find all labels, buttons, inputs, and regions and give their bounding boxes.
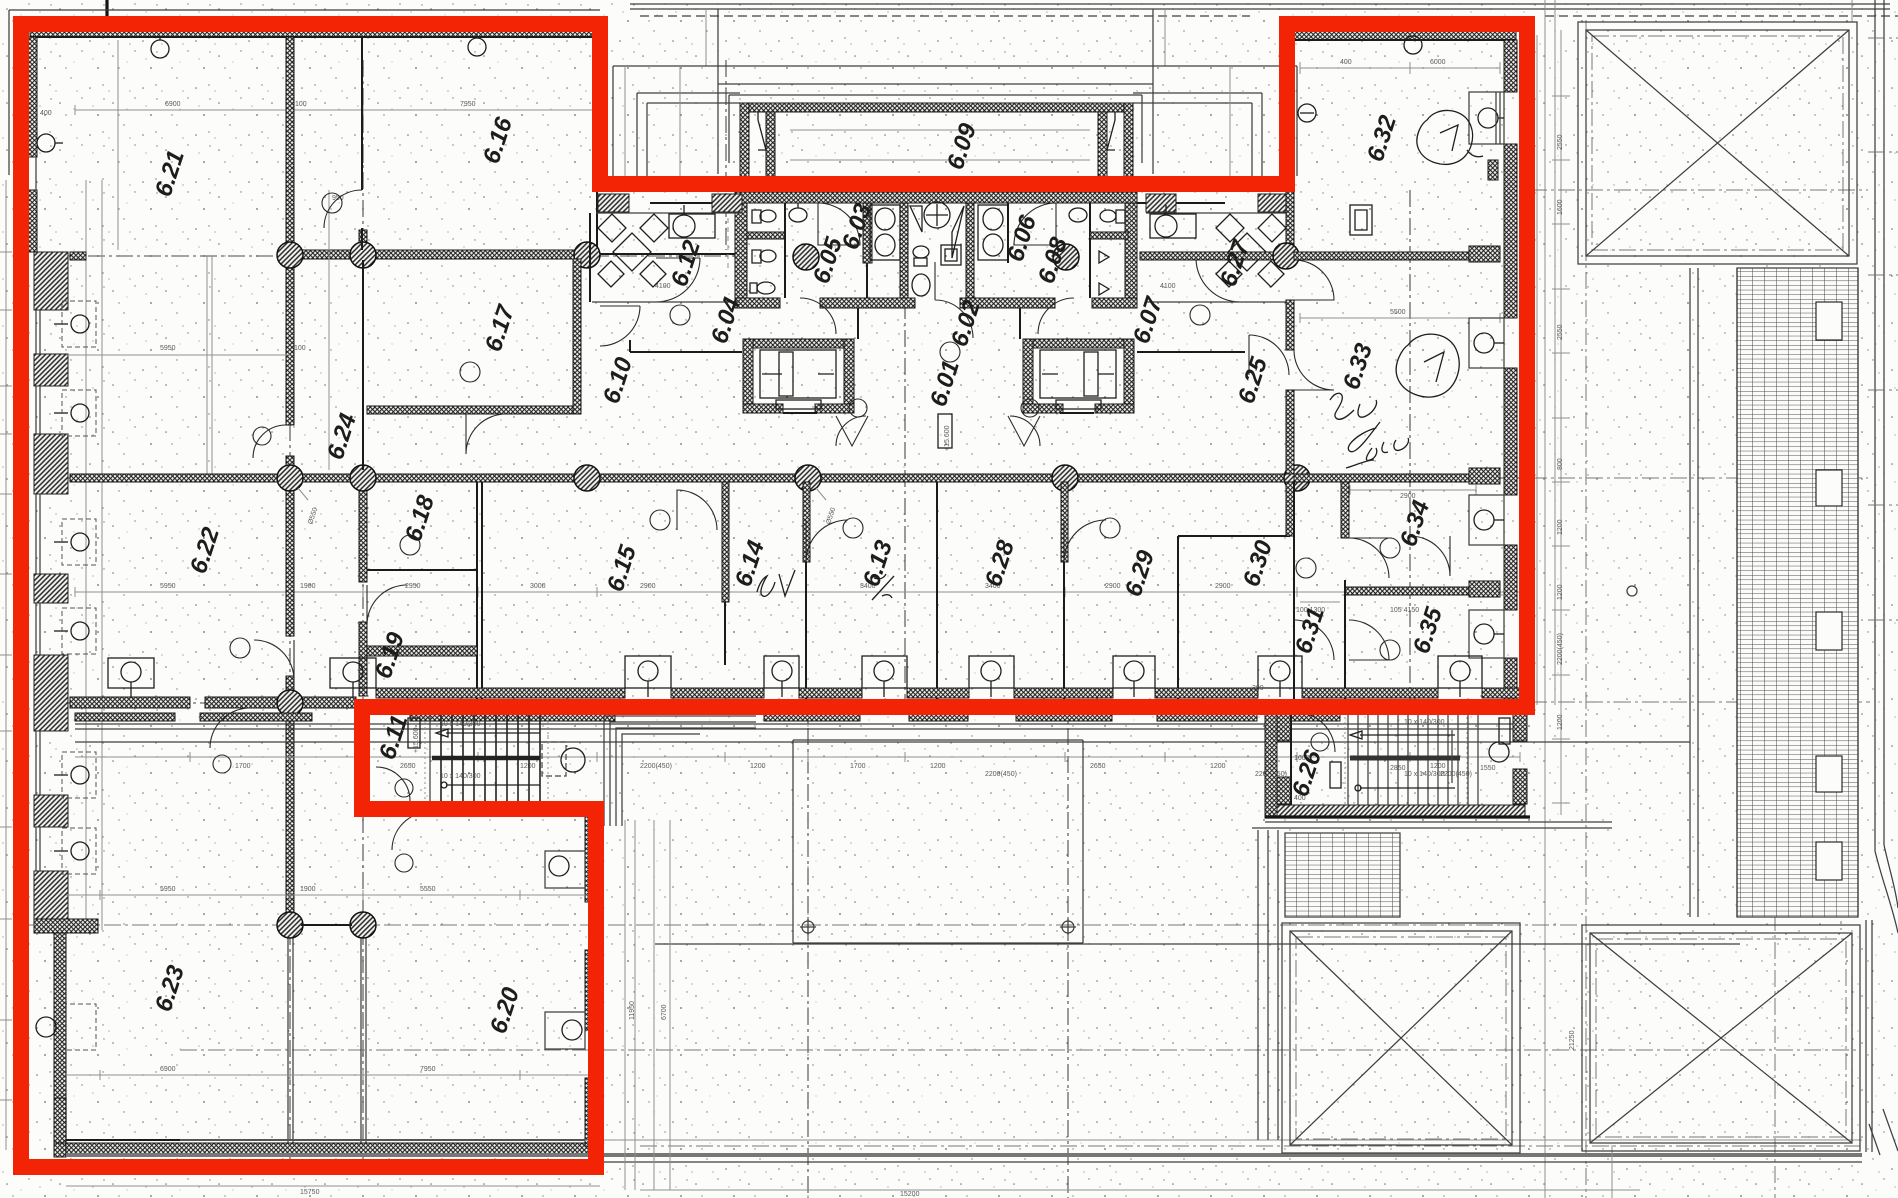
svg-text:15200: 15200: [900, 1191, 920, 1198]
svg-text:2900: 2900: [640, 583, 656, 590]
svg-text:21250: 21250: [1569, 1030, 1576, 1050]
svg-text:6900: 6900: [160, 1066, 176, 1073]
svg-text:800: 800: [1557, 458, 1564, 470]
svg-text:10 x 140/300: 10 x 140/300: [440, 773, 481, 780]
svg-text:1200: 1200: [750, 763, 766, 770]
svg-text:4100: 4100: [655, 283, 671, 290]
svg-text:7950: 7950: [460, 101, 476, 108]
svg-text:300: 300: [1252, 685, 1264, 692]
svg-text:1900: 1900: [300, 583, 316, 590]
svg-text:10 x 140/300: 10 x 140/300: [440, 721, 481, 728]
svg-text:2900: 2900: [1105, 583, 1121, 590]
svg-text:1200: 1200: [1210, 763, 1226, 770]
svg-text:1900: 1900: [300, 886, 316, 893]
svg-text:2650: 2650: [400, 763, 416, 770]
svg-text:2200(450): 2200(450): [1557, 633, 1564, 665]
svg-text:6900: 6900: [165, 101, 181, 108]
svg-text:1600: 1600: [1557, 199, 1564, 215]
svg-text:2550: 2550: [1557, 134, 1564, 150]
svg-text:10 x 140/300: 10 x 140/300: [1404, 719, 1445, 726]
svg-text:100: 100: [294, 345, 306, 352]
svg-text:400: 400: [40, 110, 52, 117]
svg-text:1200: 1200: [520, 763, 536, 770]
svg-text:1700: 1700: [235, 763, 251, 770]
svg-text:105 4150: 105 4150: [1390, 607, 1419, 614]
svg-text:+15.600: +15.600: [413, 727, 420, 753]
svg-text:3000: 3000: [530, 583, 546, 590]
svg-text:2900: 2900: [1215, 583, 1231, 590]
svg-text:1700: 1700: [850, 763, 866, 770]
svg-text:11950: 11950: [629, 1001, 636, 1020]
svg-text:400: 400: [1340, 59, 1352, 66]
svg-text:2200(450): 2200(450): [985, 771, 1017, 778]
svg-text:2650: 2650: [1090, 763, 1106, 770]
svg-text:4100: 4100: [1160, 283, 1176, 290]
svg-text:2550: 2550: [1557, 324, 1564, 340]
svg-text:5950: 5950: [160, 345, 176, 352]
svg-text:1200: 1200: [1557, 714, 1564, 730]
svg-text:2950: 2950: [405, 583, 421, 590]
svg-text:100: 100: [295, 101, 307, 108]
svg-text:5950: 5950: [160, 583, 176, 590]
svg-text:5500: 5500: [1390, 309, 1406, 316]
svg-text:15750: 15750: [300, 1189, 320, 1196]
svg-text:5550: 5550: [420, 886, 436, 893]
svg-text:1200: 1200: [1557, 519, 1564, 535]
svg-text:1200: 1200: [930, 763, 946, 770]
svg-text:2200(450): 2200(450): [640, 763, 672, 770]
svg-text:7950: 7950: [420, 1066, 436, 1073]
svg-text:5950: 5950: [160, 886, 176, 893]
svg-text:+15.600: +15.600: [944, 425, 951, 451]
svg-text:10 x 140/300: 10 x 140/300: [1404, 771, 1445, 778]
svg-text:1200: 1200: [1557, 584, 1564, 600]
svg-text:6000: 6000: [1430, 59, 1446, 66]
svg-text:6700: 6700: [661, 1004, 668, 1020]
svg-text:1550: 1550: [1480, 765, 1496, 772]
